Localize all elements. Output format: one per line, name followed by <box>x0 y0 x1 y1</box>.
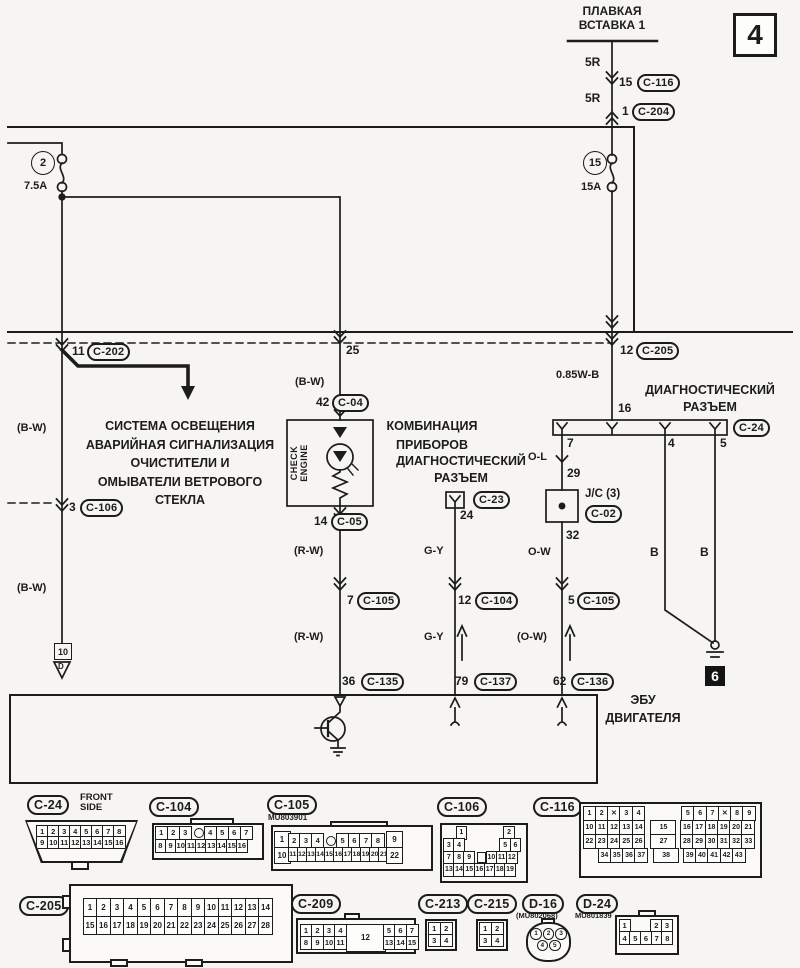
wire-label-ow-2: (O-W) <box>517 631 547 644</box>
pinout-c116: 12✕34567✕89 101112131415161718192021 222… <box>579 802 762 878</box>
pin-cell: 1 <box>530 928 542 940</box>
pin-cell: 38 <box>653 848 679 864</box>
ecu-label: ЭБУ ДВИГАТЕЛЯ <box>597 691 689 727</box>
pin-cell: 14 <box>258 898 273 918</box>
check-engine-text: CHECK ENGINE <box>289 425 311 501</box>
pin-cell: 19 <box>504 863 516 877</box>
mounting-tab <box>62 938 71 952</box>
wire-label-ow-1: O-W <box>528 546 551 559</box>
connector-ref-c116: C-116 <box>637 74 680 92</box>
connector-key-tab <box>71 861 89 870</box>
wire-label-5r-1: 5R <box>585 56 600 70</box>
pinout-c205: 1234567891011121314 15161718192021222324… <box>69 884 293 963</box>
pin-12-mid-label: 12 <box>458 594 471 608</box>
pinout-c215: 12 34 <box>476 919 508 951</box>
mounting-tab <box>110 959 128 967</box>
pin-36-label: 36 <box>342 675 355 689</box>
connector-ref-c02: C-02 <box>585 505 622 523</box>
pin-cell: 16 <box>236 839 248 854</box>
pin-12-top-label: 12 <box>620 344 633 358</box>
pin-cell: 4 <box>537 940 549 952</box>
connector-ref-c04: C-04 <box>332 394 369 412</box>
pinout-label-c24: C-24 <box>27 795 69 815</box>
wire-label-gy-1: G-Y <box>424 545 444 558</box>
pin-79-label: 79 <box>455 675 468 689</box>
wire-label-5r-2: 5R <box>585 92 600 106</box>
fuse-15-symbol <box>607 155 618 331</box>
pinout-label-c213: C-213 <box>418 894 468 914</box>
pinout-c106: 12 34 56 789 101112 13141516171819 <box>440 823 528 883</box>
fuse-2-rating: 7.5A <box>24 180 47 193</box>
pin-15-label: 15 <box>619 76 632 90</box>
pinout-d16: 123 45 <box>526 922 571 962</box>
pin-cell: 5 <box>549 940 561 952</box>
pin-42-label: 42 <box>316 396 329 410</box>
wire-label-rw-1: (R-W) <box>294 545 323 558</box>
pinout-c24: 12345678 910111213141516 <box>25 820 138 863</box>
bus-top <box>8 127 634 332</box>
connector-ref-c137: C-137 <box>474 673 517 691</box>
page-ref-number-box: 10 <box>54 643 72 660</box>
ground-ref-box: 6 <box>705 666 725 686</box>
wire-label-bw-3: (B-W) <box>295 376 324 389</box>
wire-label-bw-1: (B-W) <box>17 422 46 435</box>
pin-cell: 22 <box>386 847 403 864</box>
ecu-box <box>10 695 597 783</box>
transistor-symbol <box>315 706 345 756</box>
pin-cell: 3 <box>555 928 567 940</box>
pin-cell: 4 <box>491 934 505 948</box>
pin-25-label: 25 <box>346 344 359 358</box>
wire-label-rw-2: (R-W) <box>294 631 323 644</box>
pin-4-label: 4 <box>668 437 675 451</box>
connector-ref-c23: C-23 <box>473 491 510 509</box>
front-side-note: FRONT SIDE <box>80 793 113 813</box>
pin-24-label: 24 <box>460 509 473 523</box>
pinout-d24: 1 23 45678 <box>615 915 679 955</box>
fusible-link-label: ПЛАВКАЯ ВСТАВКА 1 <box>558 5 666 33</box>
sheet-number-box: 4 <box>733 13 777 57</box>
pinout-code-d24: MU801839 <box>575 912 612 921</box>
pin-14-label: 14 <box>314 515 327 529</box>
pin-29-label: 29 <box>567 467 580 481</box>
mounting-tab <box>62 895 71 909</box>
diag-connector-c24-title: ДИАГНОСТИЧЕСКИЙ РАЗЪЕМ <box>632 382 788 416</box>
wire-label-085wb: 0.85W-B <box>556 369 599 382</box>
mounting-tab <box>185 959 203 967</box>
fuse-2-number: 2 <box>31 151 55 175</box>
wire-label-gy-2: G-Y <box>424 631 444 644</box>
pinout-label-c209: C-209 <box>291 894 341 914</box>
pin-cell: 2 <box>543 928 555 940</box>
pin-cell: 15 <box>406 936 419 950</box>
pin-7-mid-label: 7 <box>347 594 354 608</box>
pinout-c209: 1234 891011 12 567 131415 <box>296 918 416 954</box>
pinout-label-c215: C-215 <box>467 894 517 914</box>
connector-ref-c204: C-204 <box>632 103 675 121</box>
destination-systems-text: СИСТЕМА ОСВЕЩЕНИЯ АВАРИЙНАЯ СИГНАЛИЗАЦИЯ… <box>76 417 284 510</box>
pin-5-label: 5 <box>720 437 727 451</box>
pin-1-label: 1 <box>622 105 629 119</box>
diag-connector-c23-title: ДИАГНОСТИЧЕСКИЙ РАЗЪЕМ <box>388 453 534 487</box>
connector-ref-c205: C-205 <box>636 342 679 360</box>
wiring-diagram-page: 4 ПЛАВКАЯ ВСТАВКА 1 5R 15 C-116 5R 1 C-2… <box>0 0 800 968</box>
pinout-c213: 12 34 <box>425 919 457 951</box>
wire-label-b-1: B <box>650 546 659 560</box>
pinout-label-c106: C-106 <box>437 797 487 817</box>
wire-label-bw-2: (B-W) <box>17 582 46 595</box>
connector-ref-c24: C-24 <box>733 419 770 437</box>
connector-ref-c105-2: C-105 <box>577 592 620 610</box>
pin-cell: 16 <box>113 836 126 849</box>
connector-ref-c104: C-104 <box>475 592 518 610</box>
pin-cell: 43 <box>732 848 746 864</box>
connector-ref-c202: C-202 <box>87 343 130 361</box>
connector-ref-c135: C-135 <box>361 673 404 691</box>
fuse-2-symbol <box>58 155 341 333</box>
wire-label-ol: O-L <box>528 451 547 464</box>
fuse-15-number: 15 <box>583 151 607 175</box>
combination-meter-label: КОМБИНАЦИЯ ПРИБОРОВ <box>378 417 486 455</box>
pin-11-label: 11 <box>72 345 85 359</box>
page-ref-letter: D <box>58 662 64 671</box>
pin-3-label: 3 <box>69 501 76 515</box>
pinout-c105: 1 10 234 5678 1112131415161718192021 9 2… <box>271 825 433 871</box>
pinout-label-c105: C-105 <box>267 795 317 815</box>
pinout-label-c104: C-104 <box>149 797 199 817</box>
wire-label-b-2: B <box>700 546 709 560</box>
pin-7-label: 7 <box>567 437 574 451</box>
joint-connector-label: J/C (3) <box>585 488 620 501</box>
pin-32-label: 32 <box>566 529 579 543</box>
pinout-code-c105: MU803901 <box>268 813 307 822</box>
pin-62-label: 62 <box>553 675 566 689</box>
pin-cell: 8 <box>661 931 673 945</box>
fusible-link-wire <box>568 41 657 155</box>
pin-cell: 37 <box>634 848 648 864</box>
connector-ref-c05: C-05 <box>331 513 368 531</box>
fuse-15-rating: 15A <box>581 181 601 194</box>
pinout-c104: 123 4567 8910111213141516 <box>152 823 264 860</box>
pin-cell: 9 <box>386 831 403 848</box>
pinout-label-c116: C-116 <box>533 797 582 817</box>
connector-ref-c105-1: C-105 <box>357 592 400 610</box>
pin-cell: 4 <box>440 934 454 948</box>
pin-5-mid-label: 5 <box>568 594 575 608</box>
connector-ref-c136: C-136 <box>571 673 614 691</box>
pin-16-label: 16 <box>618 402 631 416</box>
pin-cell: 12 <box>346 924 386 952</box>
pin-cell: 28 <box>258 916 273 936</box>
